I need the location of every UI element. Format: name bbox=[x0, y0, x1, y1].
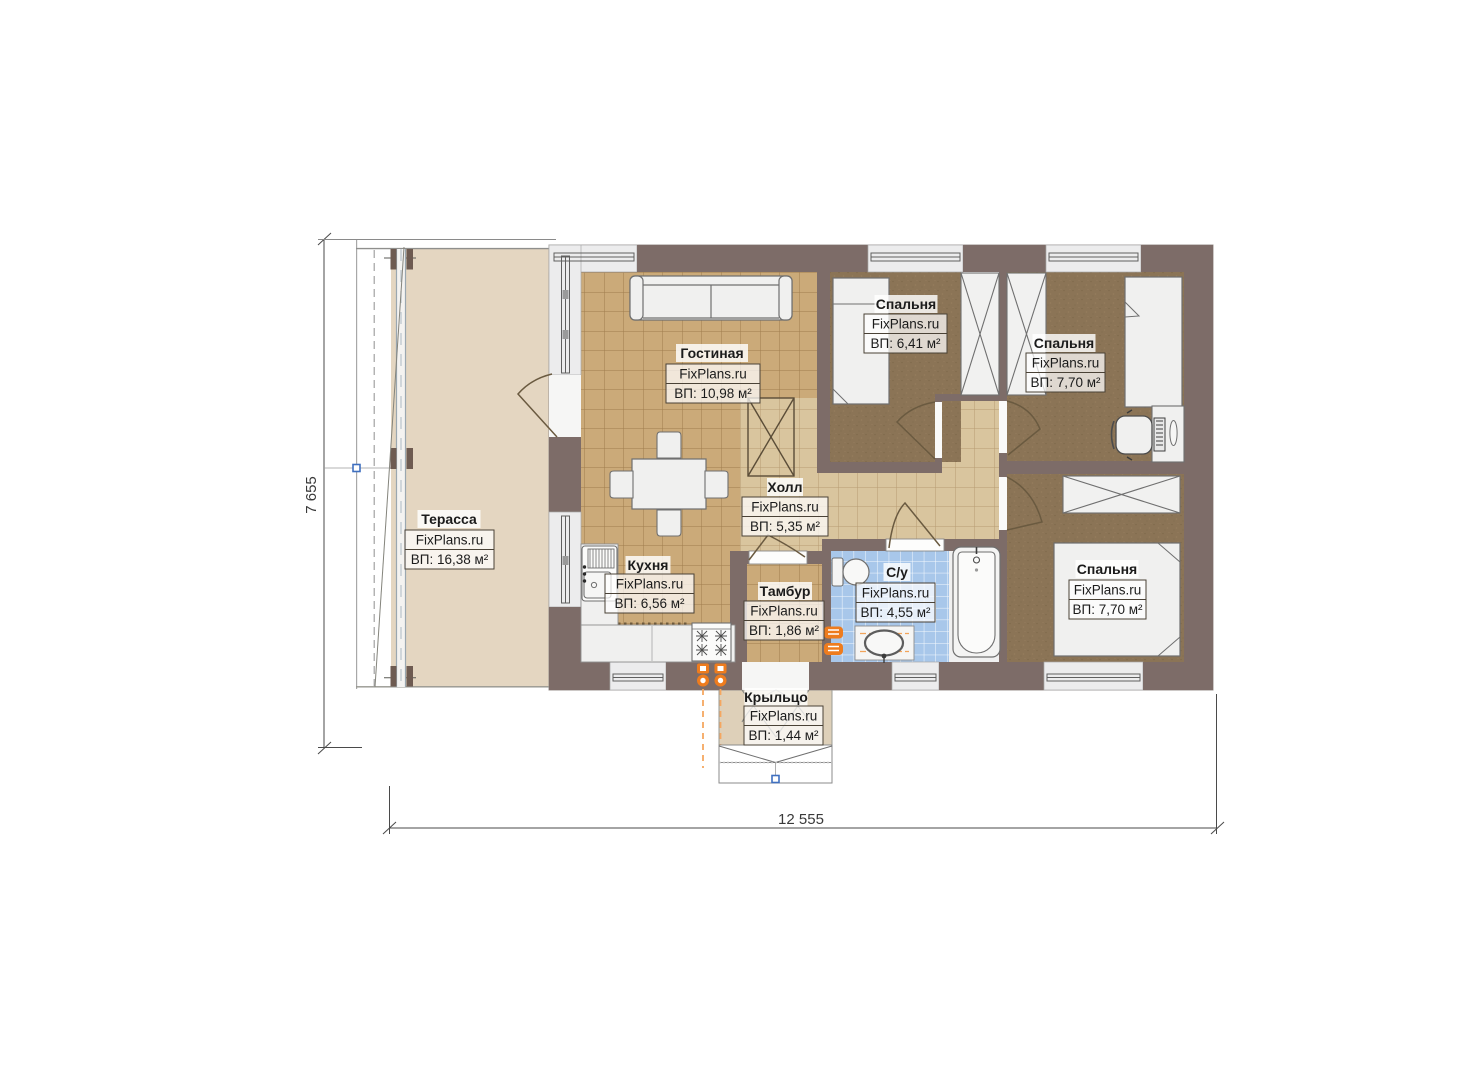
svg-text:Кухня: Кухня bbox=[628, 557, 669, 573]
svg-text:Терасса: Терасса bbox=[421, 511, 477, 527]
svg-text:Гостиная: Гостиная bbox=[680, 345, 743, 361]
svg-text:FixPlans.ru: FixPlans.ru bbox=[1032, 356, 1100, 371]
svg-text:ВП: 6,41 м²: ВП: 6,41 м² bbox=[870, 336, 941, 351]
svg-text:ВП: 1,44 м²: ВП: 1,44 м² bbox=[748, 728, 819, 743]
svg-text:ВП: 5,35 м²: ВП: 5,35 м² bbox=[750, 519, 821, 534]
svg-text:FixPlans.ru: FixPlans.ru bbox=[1074, 583, 1142, 598]
svg-text:ВП: 10,98 м²: ВП: 10,98 м² bbox=[674, 386, 752, 401]
svg-text:ВП: 16,38 м²: ВП: 16,38 м² bbox=[411, 552, 489, 567]
svg-text:FixPlans.ru: FixPlans.ru bbox=[616, 577, 684, 592]
svg-text:Холл: Холл bbox=[767, 479, 802, 495]
svg-text:FixPlans.ru: FixPlans.ru bbox=[751, 500, 819, 515]
svg-text:FixPlans.ru: FixPlans.ru bbox=[862, 586, 930, 601]
svg-text:ВП: 1,86 м²: ВП: 1,86 м² bbox=[749, 623, 820, 638]
svg-text:ВП: 7,70 м²: ВП: 7,70 м² bbox=[1072, 602, 1143, 617]
svg-text:ВП: 6,56 м²: ВП: 6,56 м² bbox=[614, 596, 685, 611]
svg-text:FixPlans.ru: FixPlans.ru bbox=[750, 604, 818, 619]
svg-text:Спальня: Спальня bbox=[1034, 335, 1094, 351]
svg-text:ВП: 4,55 м²: ВП: 4,55 м² bbox=[860, 605, 931, 620]
svg-text:Спальня: Спальня bbox=[876, 296, 936, 312]
svg-text:12 555: 12 555 bbox=[778, 811, 824, 828]
svg-text:ВП: 7,70 м²: ВП: 7,70 м² bbox=[1030, 375, 1101, 390]
svg-text:Крыльцо: Крыльцо bbox=[744, 689, 808, 705]
svg-text:7 655: 7 655 bbox=[303, 476, 320, 514]
svg-text:С/у: С/у bbox=[886, 564, 908, 580]
svg-text:Тамбур: Тамбур bbox=[760, 583, 811, 599]
svg-text:FixPlans.ru: FixPlans.ru bbox=[750, 709, 818, 724]
svg-text:Спальня: Спальня bbox=[1077, 561, 1137, 577]
svg-text:FixPlans.ru: FixPlans.ru bbox=[872, 317, 940, 332]
svg-text:FixPlans.ru: FixPlans.ru bbox=[679, 367, 747, 382]
svg-text:FixPlans.ru: FixPlans.ru bbox=[416, 533, 484, 548]
